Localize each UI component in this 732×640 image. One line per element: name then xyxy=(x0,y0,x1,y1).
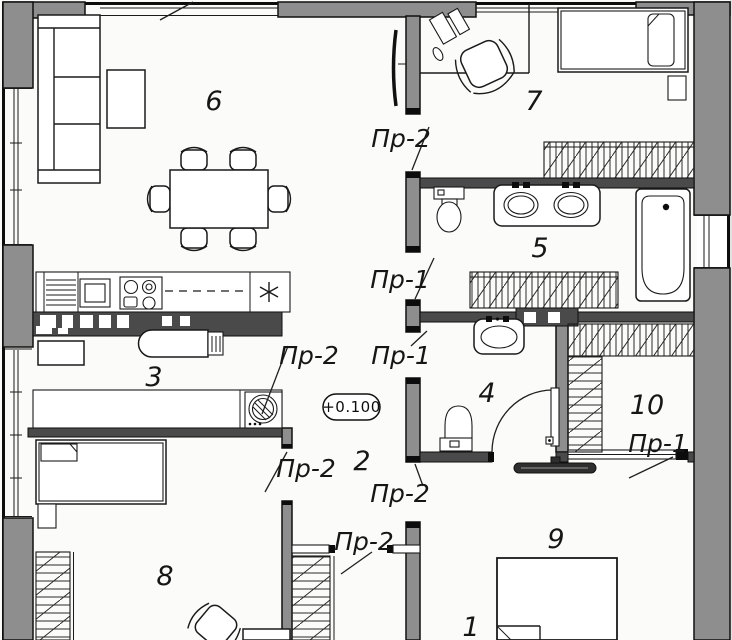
bathtub-icon xyxy=(636,189,690,301)
floor-plan: Пр-2 Пр-1 Пр-2 Пр-1 Пр-2 Пр-2 Пр-1 Пр-2 … xyxy=(0,0,732,640)
opening-label-pr2: Пр-2 xyxy=(371,124,431,153)
room-number-5: 5 xyxy=(531,233,548,264)
opening-label-pr2: Пр-2 xyxy=(279,341,339,370)
kitchen-sink-icon xyxy=(80,279,110,307)
sofa-icon xyxy=(38,15,100,183)
dining-table-icon xyxy=(170,170,268,228)
room-number-3: 3 xyxy=(145,362,162,393)
room-number-1: 1 xyxy=(462,612,479,640)
room-number-4: 4 xyxy=(478,378,495,409)
nightstand-icon xyxy=(668,76,686,100)
bed-icon-room9 xyxy=(497,558,617,640)
opening-label-pr2: Пр-2 xyxy=(370,479,430,508)
desk-icon-room8 xyxy=(243,629,290,640)
room-number-7: 7 xyxy=(525,86,542,117)
stove-icon xyxy=(120,277,162,309)
wardrobe-hatch-room8 xyxy=(36,552,74,640)
room-number-9: 9 xyxy=(547,524,564,555)
opening-label-pr1: Пр-1 xyxy=(628,429,688,458)
room-number-6: 6 xyxy=(205,86,222,117)
nightstand-icon xyxy=(38,504,56,528)
shelf-hatch-room5 xyxy=(470,272,618,308)
room-number-8: 8 xyxy=(156,561,173,592)
coffee-table-icon xyxy=(107,70,145,128)
room-number-10: 10 xyxy=(630,390,664,421)
opening-label-pr2: Пр-2 xyxy=(276,454,336,483)
window-right-bath xyxy=(694,216,728,268)
sink-icon-room4 xyxy=(474,316,524,354)
toilet-icon-room5 xyxy=(434,187,464,232)
elevation-value: +0.100 xyxy=(322,398,381,416)
cabinet-icon xyxy=(38,341,84,365)
double-sink-vanity-icon xyxy=(494,182,600,226)
ironing-board-icon xyxy=(139,330,224,357)
opening-label-pr1: Пр-1 xyxy=(371,341,431,370)
opening-label-pr2: Пр-2 xyxy=(334,527,394,556)
kitchen-counter xyxy=(36,272,290,312)
opening-label-pr1: Пр-1 xyxy=(370,265,430,294)
stairs-hatch-room1 xyxy=(292,556,334,640)
room-number-2: 2 xyxy=(353,446,370,477)
wardrobe-hatch-room7 xyxy=(544,142,694,178)
elevation-marker: +0.100 xyxy=(322,394,381,420)
